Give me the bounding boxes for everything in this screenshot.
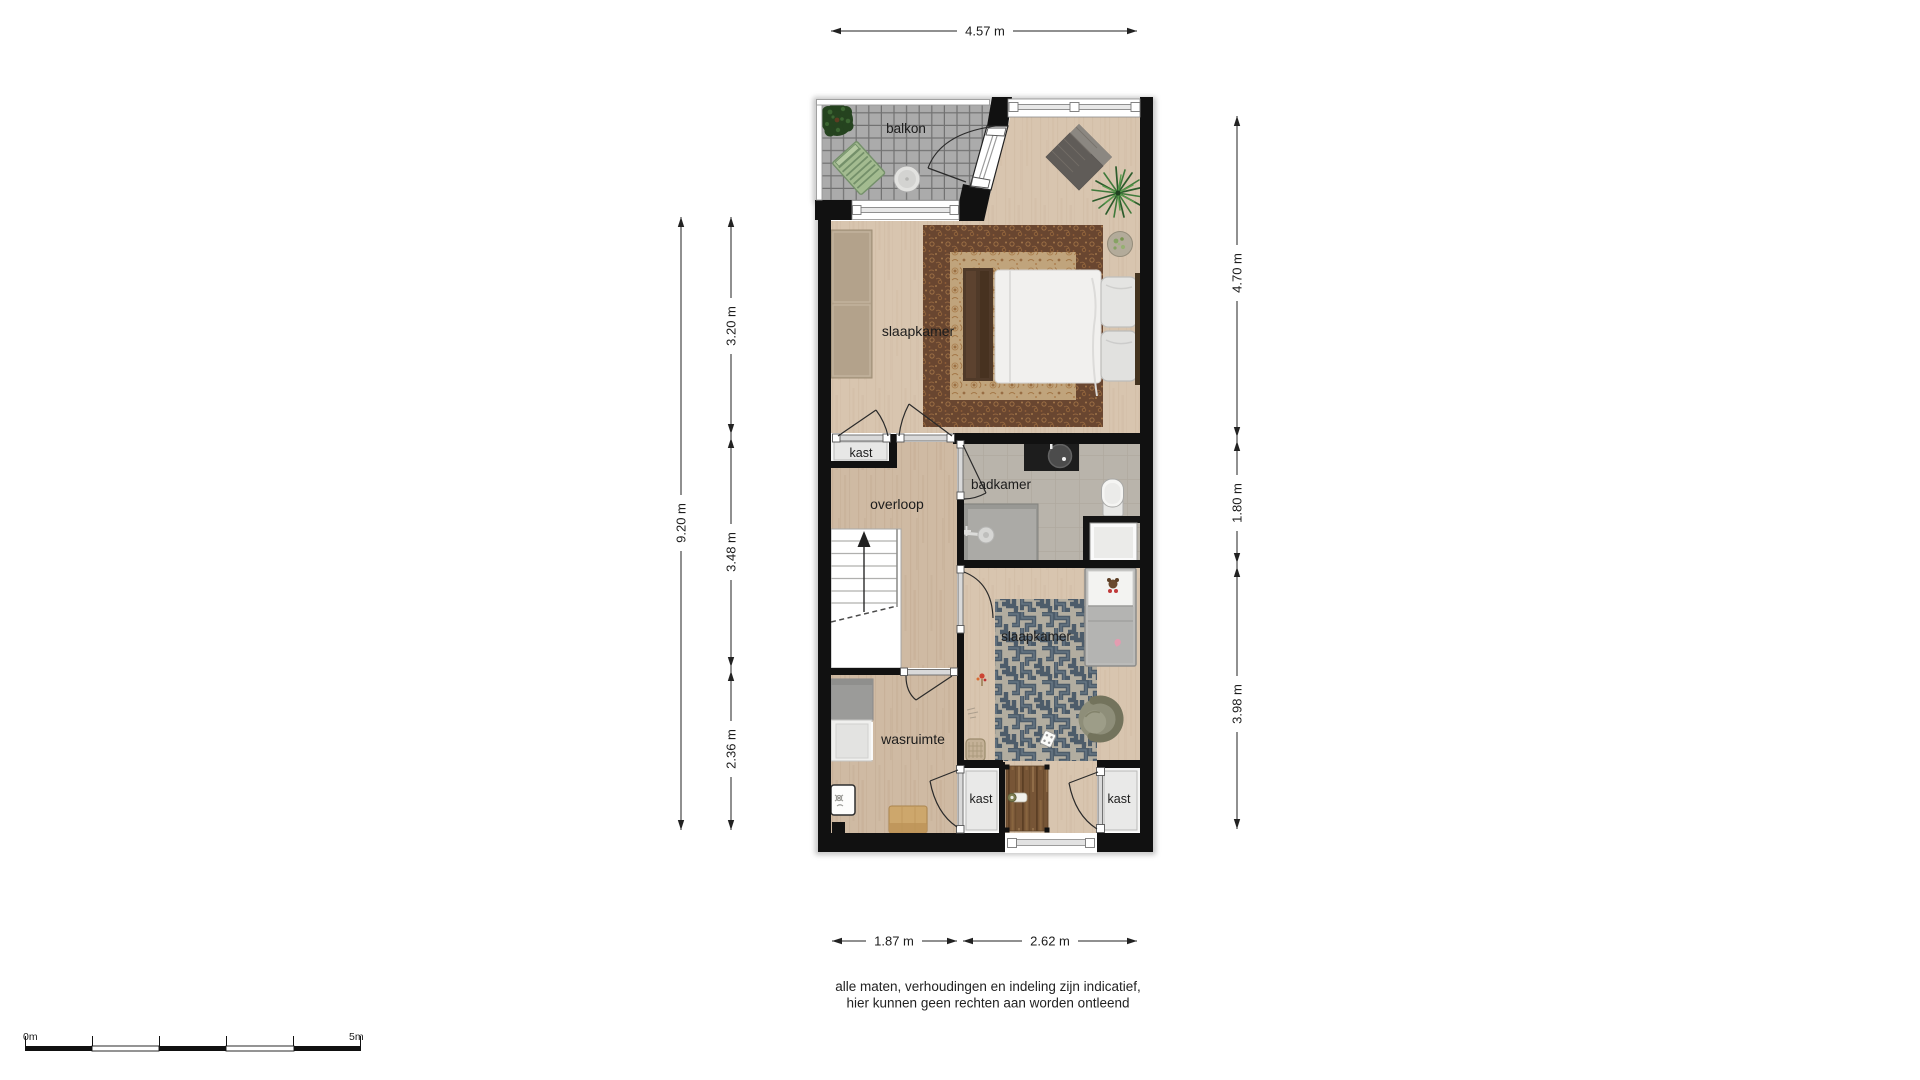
svg-text:kast: kast bbox=[970, 792, 993, 806]
svg-text:slaapkamer: slaapkamer bbox=[1001, 629, 1071, 644]
svg-text:overloop: overloop bbox=[870, 496, 924, 512]
svg-text:2.62 m: 2.62 m bbox=[1030, 934, 1070, 949]
svg-text:kast: kast bbox=[850, 446, 873, 460]
svg-text:9.20 m: 9.20 m bbox=[674, 503, 689, 543]
svg-text:kast: kast bbox=[1108, 792, 1131, 806]
svg-text:5m: 5m bbox=[349, 1031, 364, 1043]
svg-text:1.80 m: 1.80 m bbox=[1230, 483, 1245, 523]
svg-text:hier kunnen geen rechten aan w: hier kunnen geen rechten aan worden ontl… bbox=[847, 996, 1130, 1011]
svg-text:wasruimte: wasruimte bbox=[880, 731, 945, 747]
svg-text:alle maten, verhoudingen en in: alle maten, verhoudingen en indeling zij… bbox=[835, 979, 1140, 994]
svg-text:3.48 m: 3.48 m bbox=[724, 532, 739, 572]
svg-text:3.20 m: 3.20 m bbox=[724, 306, 739, 346]
svg-text:4.70 m: 4.70 m bbox=[1230, 253, 1245, 293]
svg-text:balkon: balkon bbox=[886, 121, 926, 136]
svg-text:2.36 m: 2.36 m bbox=[724, 729, 739, 769]
svg-text:3.98 m: 3.98 m bbox=[1230, 684, 1245, 724]
svg-text:badkamer: badkamer bbox=[971, 477, 1032, 492]
svg-text:1.87 m: 1.87 m bbox=[874, 934, 914, 949]
svg-text:4.57 m: 4.57 m bbox=[965, 24, 1005, 39]
svg-text:slaapkamer: slaapkamer bbox=[882, 323, 955, 339]
